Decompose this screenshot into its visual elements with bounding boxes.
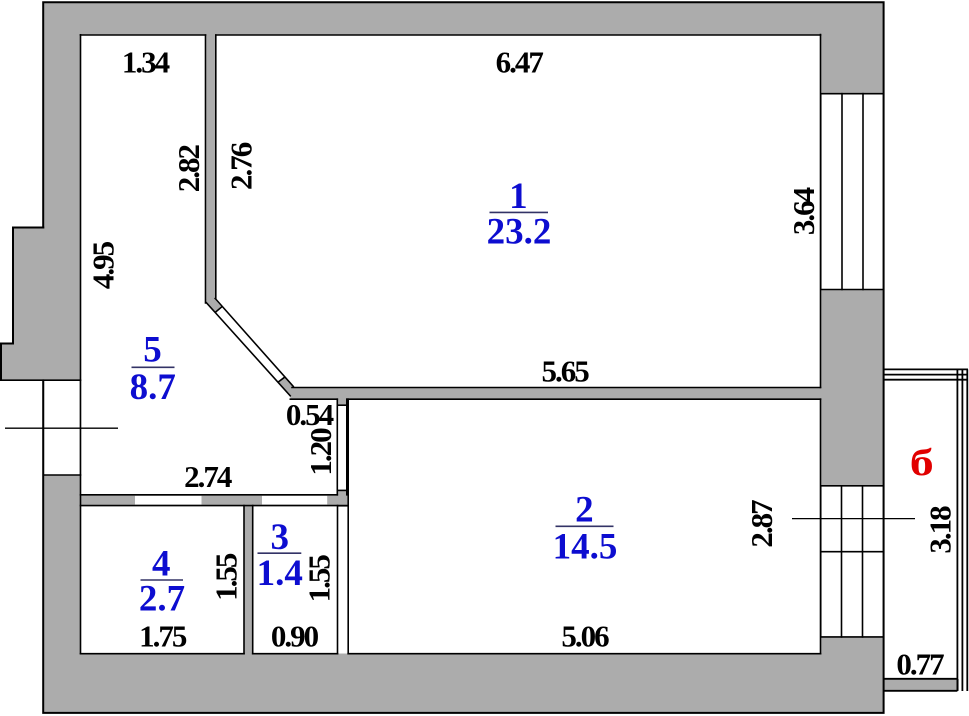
svg-text:5.65: 5.65 bbox=[541, 354, 589, 389]
svg-text:1.34: 1.34 bbox=[122, 45, 170, 80]
svg-text:8.7: 8.7 bbox=[130, 367, 176, 408]
svg-text:1.20: 1.20 bbox=[303, 428, 338, 476]
svg-text:1.75: 1.75 bbox=[139, 619, 187, 654]
svg-text:3.18: 3.18 bbox=[923, 506, 958, 554]
svg-text:1.55: 1.55 bbox=[209, 553, 244, 601]
svg-text:23.2: 23.2 bbox=[487, 211, 552, 252]
svg-text:3.64: 3.64 bbox=[786, 187, 821, 235]
svg-text:6.47: 6.47 bbox=[496, 45, 544, 80]
svg-text:5.06: 5.06 bbox=[561, 619, 609, 654]
svg-text:0.54: 0.54 bbox=[286, 397, 334, 432]
svg-text:2.82: 2.82 bbox=[171, 144, 206, 192]
svg-text:3: 3 bbox=[270, 517, 289, 558]
svg-text:2: 2 bbox=[575, 490, 594, 531]
svg-text:1.55: 1.55 bbox=[302, 555, 337, 603]
svg-text:1.4: 1.4 bbox=[257, 553, 303, 594]
svg-text:0.77: 0.77 bbox=[896, 647, 944, 682]
svg-text:2.76: 2.76 bbox=[224, 142, 259, 190]
svg-text:5: 5 bbox=[143, 330, 162, 371]
svg-text:14.5: 14.5 bbox=[553, 527, 618, 568]
svg-text:0.90: 0.90 bbox=[271, 619, 319, 654]
svg-text:2.74: 2.74 bbox=[184, 459, 232, 494]
svg-text:2.87: 2.87 bbox=[744, 500, 779, 548]
svg-text:б: б bbox=[910, 442, 934, 484]
svg-text:4.95: 4.95 bbox=[86, 241, 121, 289]
svg-text:2.7: 2.7 bbox=[139, 579, 185, 620]
